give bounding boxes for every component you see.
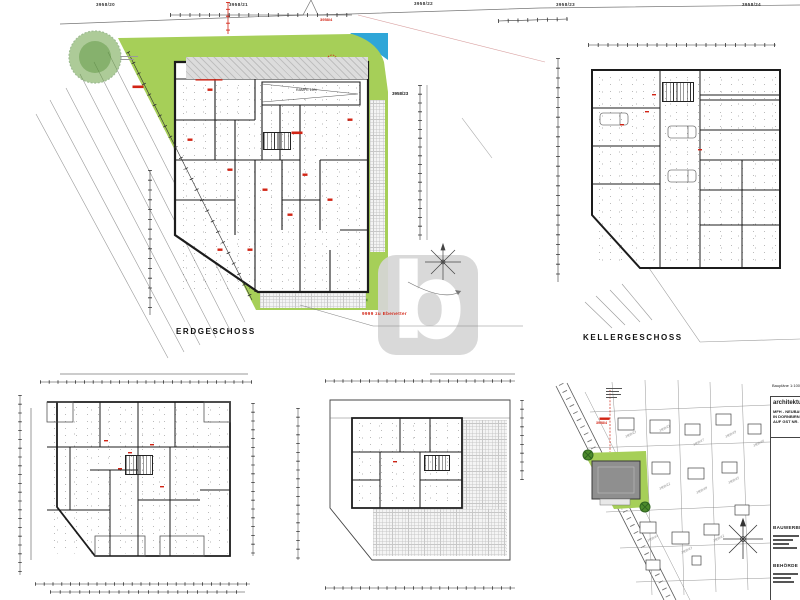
text-line-placeholder [773,547,797,549]
text-line-placeholder [120,56,138,57]
project-line: AUF GST NR. [773,419,799,424]
boundary-label: 3958/20 [96,2,115,7]
curved-leader-arrow [408,282,461,295]
scale-note: Baupläne 1:100 [772,383,800,388]
text-line-placeholder [773,535,799,537]
section-heading-bauwerber: BAUWERBER [773,525,800,530]
annotation-layer [0,0,800,600]
boundary-label: 3958/23 [556,2,575,7]
boundary-label: 3958/22 [414,1,433,6]
text-line-placeholder [773,577,791,579]
text-line-placeholder [773,543,789,545]
text-line-placeholder [120,59,134,60]
red-note-ebenetter: 9999 zu Ebenetter [362,311,407,316]
title-erdgeschoss: ERDGESCHOSS [176,327,256,336]
title-block: Baupläne 1:100 architektur MFH - NEUBAU … [770,383,800,600]
plan-sheet: 3958/23 RAMPE 15% 3958/4 [0,0,800,600]
compass-rose-eg [425,244,461,280]
firm-name: architektur [773,400,800,406]
text-line-placeholder [773,573,798,575]
text-line-placeholder [773,581,794,583]
leader-arrowhead [455,290,461,295]
boundary-label: 3958/24 [742,2,761,7]
section-heading-behoerde: BEHÖRDE [773,563,798,568]
title-kellergeschoss: KELLERGESCHOSS [583,333,683,342]
text-line-placeholder [773,539,793,541]
boundary-label: 3958/21 [229,2,248,7]
